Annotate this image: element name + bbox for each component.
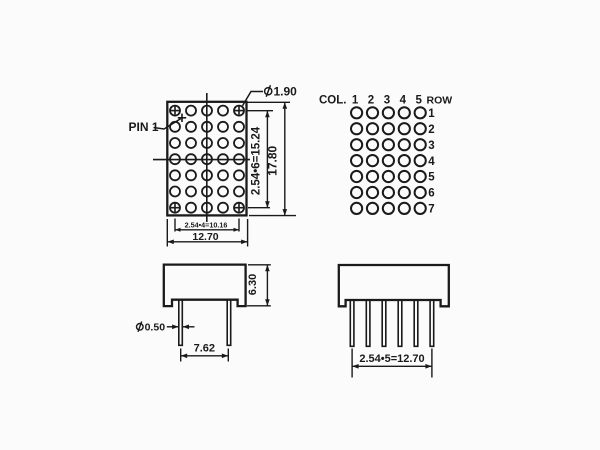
svg-text:4: 4 [400,95,407,107]
svg-text:2: 2 [368,95,374,107]
svg-text:ROW: ROW [427,95,453,107]
svg-text:12.70: 12.70 [192,231,218,243]
svg-text:1.90: 1.90 [274,85,298,99]
svg-text:6.30: 6.30 [247,274,259,295]
svg-text:7: 7 [428,204,434,216]
svg-text:4: 4 [428,156,435,168]
svg-text:5: 5 [415,95,422,107]
svg-text:17.80: 17.80 [266,145,280,175]
svg-text:0.50: 0.50 [145,321,166,333]
svg-text:COL.: COL. [319,95,346,107]
svg-text:PIN 1: PIN 1 [129,120,159,134]
svg-text:2: 2 [428,124,434,136]
svg-text:1: 1 [428,108,435,120]
svg-text:2.54•4=10.16: 2.54•4=10.16 [185,221,228,230]
svg-text:3: 3 [428,140,434,152]
svg-text:5: 5 [428,172,435,184]
svg-text:7.62: 7.62 [194,342,215,354]
svg-text:2.54•5=12.70: 2.54•5=12.70 [359,353,424,365]
svg-text:1: 1 [352,95,359,107]
svg-text:6: 6 [428,188,434,200]
svg-text:3: 3 [384,95,390,107]
svg-text:2.54•6=15.24: 2.54•6=15.24 [250,126,262,195]
